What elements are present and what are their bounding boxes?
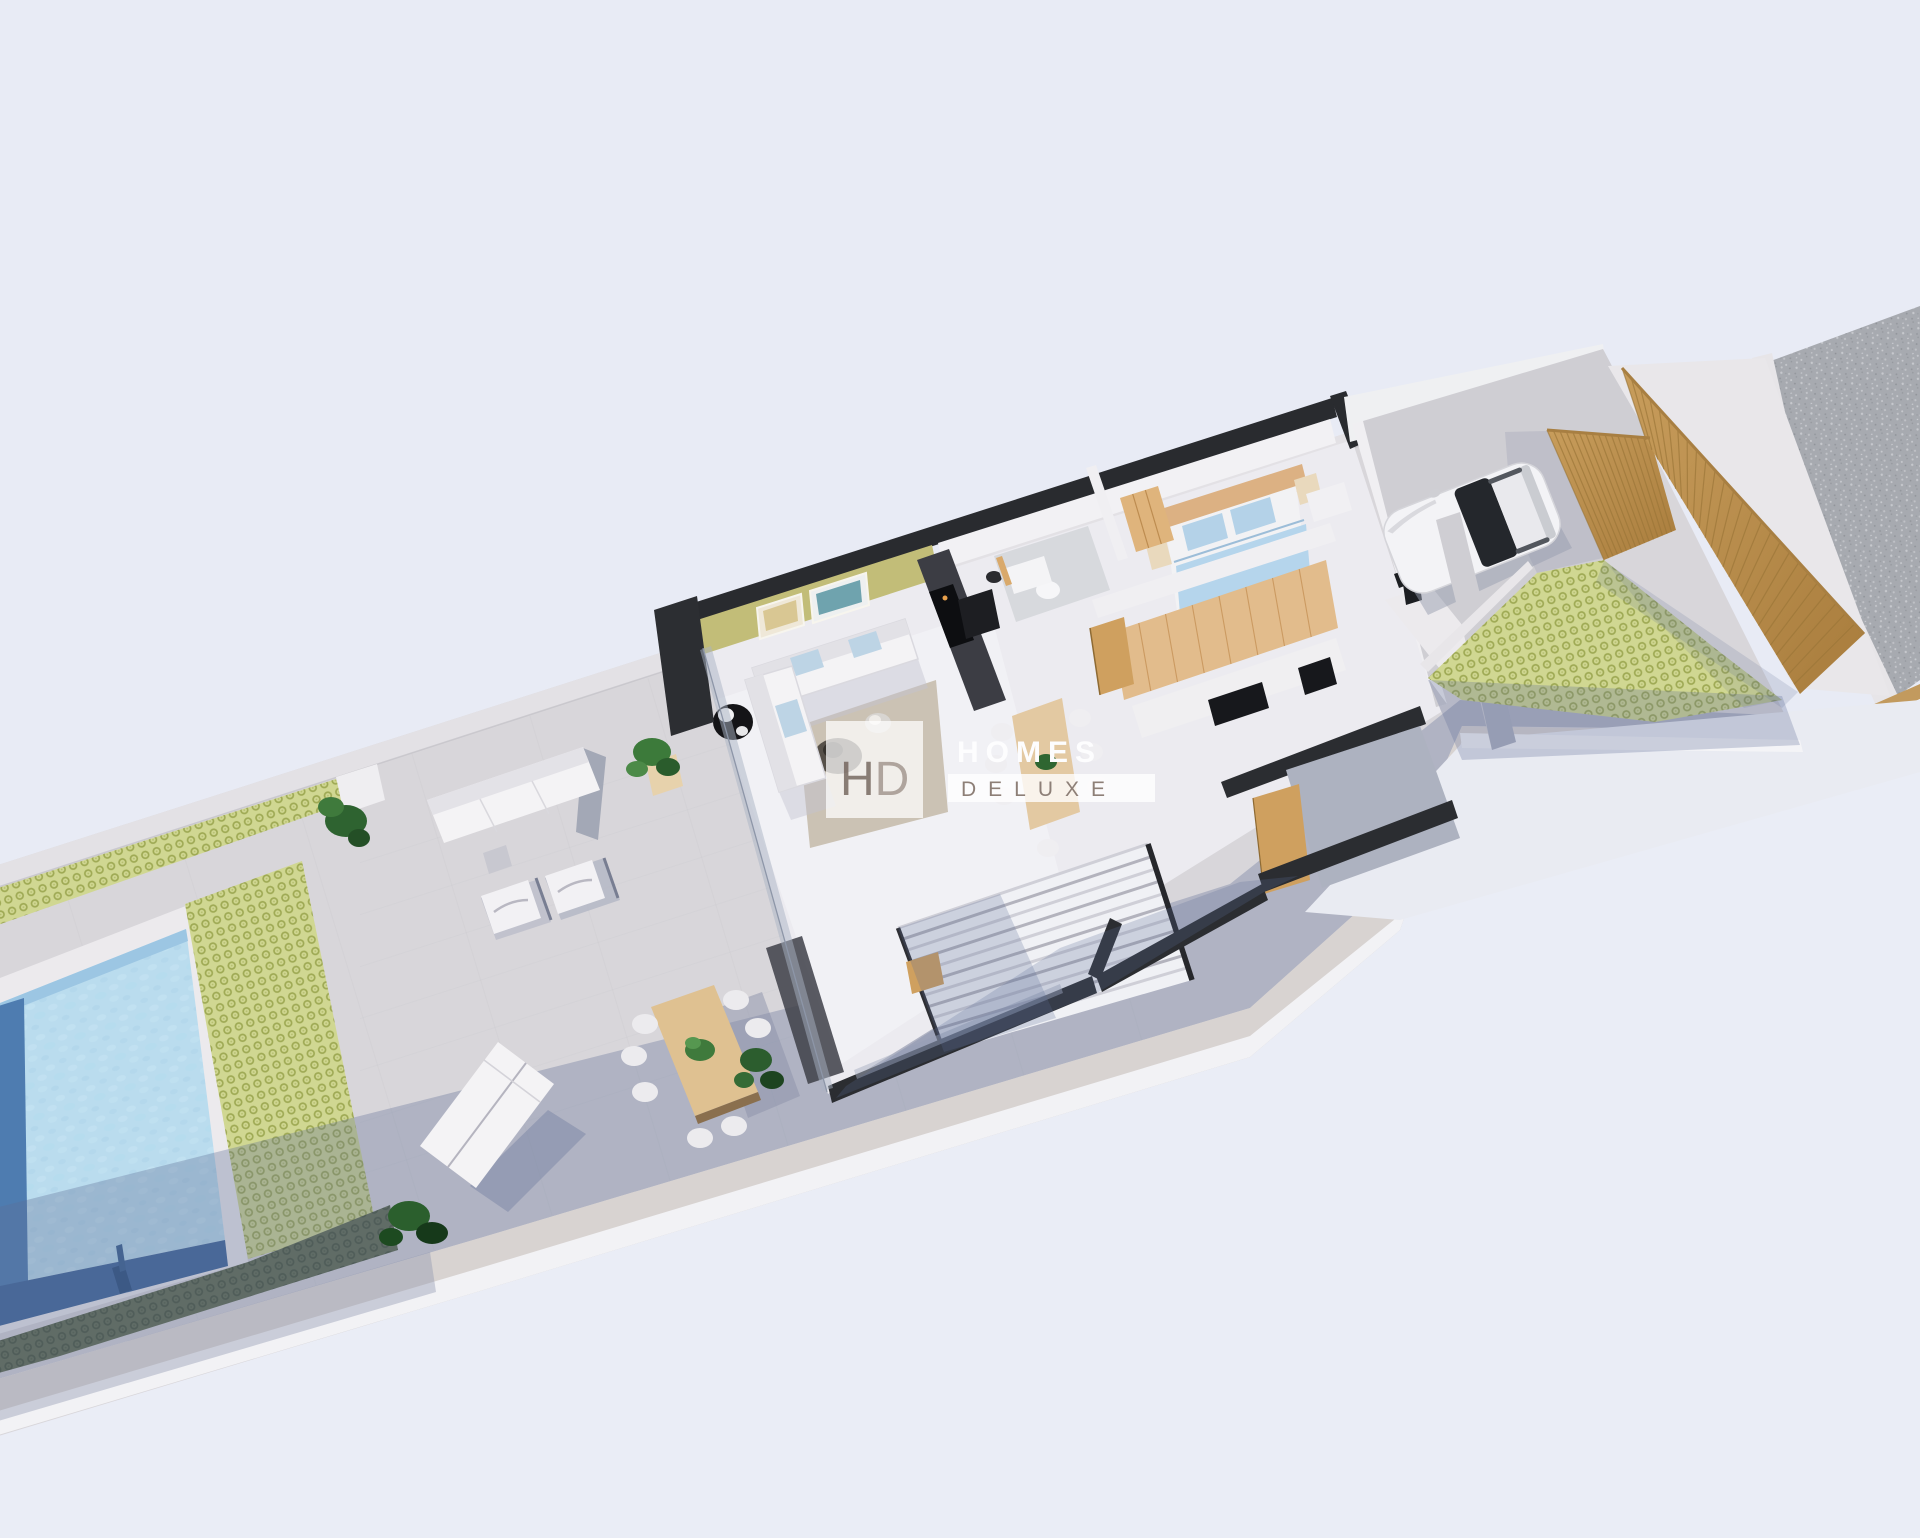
svg-text:DELUXE: DELUXE [961, 778, 1117, 801]
svg-text:HD: HD [840, 753, 909, 806]
svg-text:HOMES: HOMES [957, 736, 1102, 769]
